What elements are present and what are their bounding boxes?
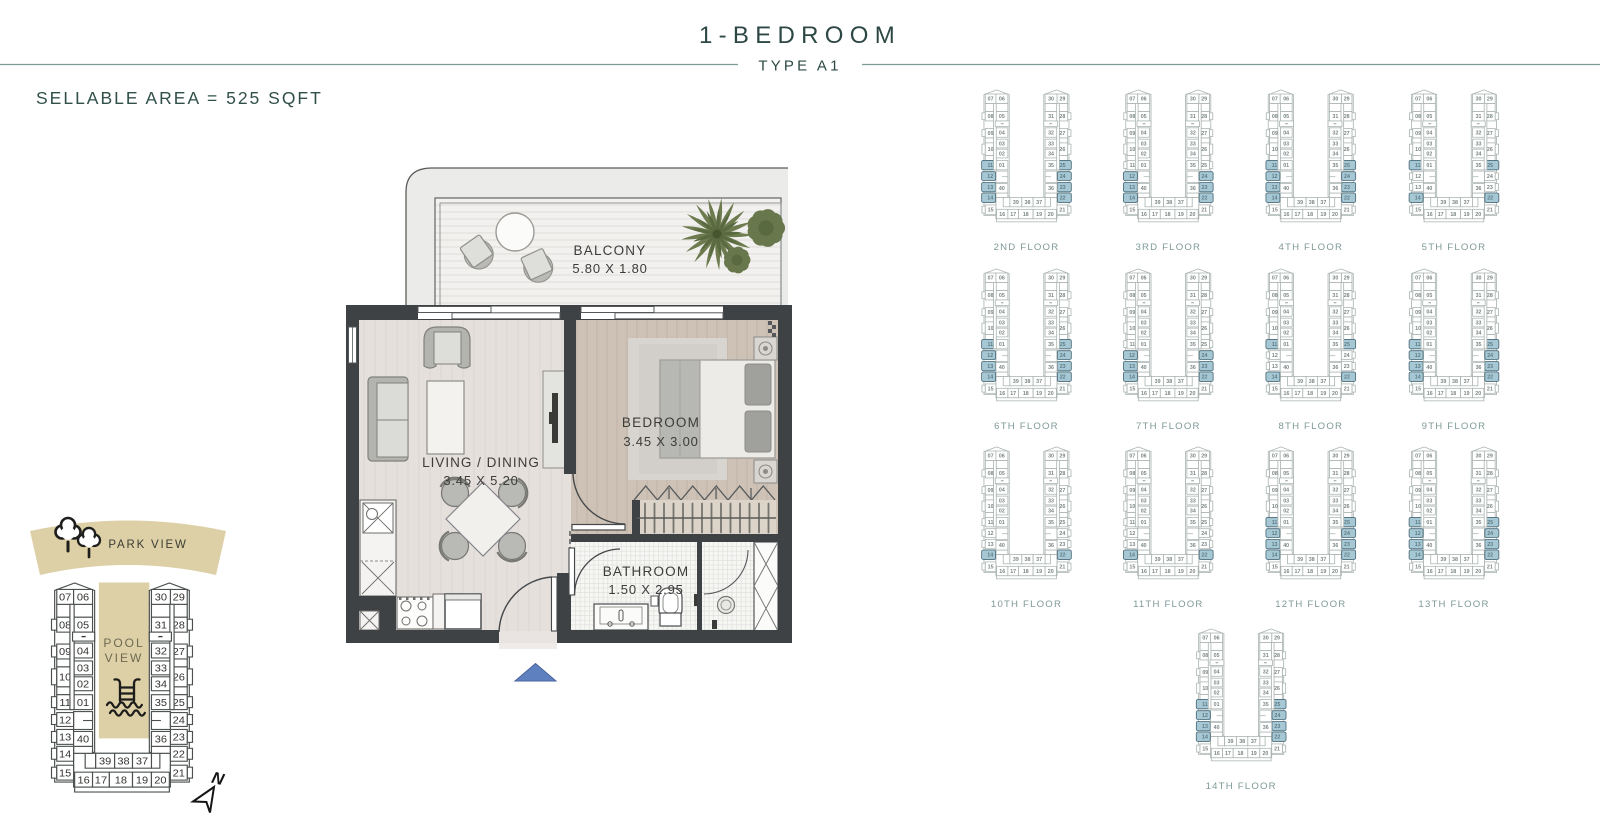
svg-text:20: 20 [1048,569,1054,575]
svg-text:22: 22 [1060,375,1066,381]
svg-text:40: 40 [1283,543,1289,549]
svg-text:16: 16 [999,391,1005,397]
svg-text:15: 15 [988,387,994,393]
svg-text:36: 36 [1476,543,1482,549]
svg-text:10: 10 [1272,147,1278,153]
svg-text:21: 21 [1059,565,1065,571]
svg-text:25: 25 [1344,520,1350,526]
svg-text:03: 03 [1283,141,1289,147]
svg-text:20: 20 [1332,391,1338,397]
svg-text:23: 23 [173,732,185,744]
svg-text:05: 05 [1283,114,1289,120]
svg-text:17: 17 [1225,751,1231,757]
svg-text:31: 31 [1332,114,1338,120]
svg-text:09: 09 [1202,670,1208,676]
svg-text:20: 20 [1048,391,1054,397]
svg-text:12: 12 [1272,174,1278,180]
svg-text:12: 12 [1129,531,1135,537]
svg-text:25: 25 [1201,163,1207,169]
svg-text:11: 11 [1130,163,1136,169]
svg-text:08: 08 [1415,293,1421,299]
svg-text:39: 39 [1013,200,1019,206]
svg-text:18: 18 [1165,391,1171,397]
svg-text:29: 29 [1059,454,1065,460]
svg-text:06: 06 [1426,276,1432,282]
svg-text:27: 27 [1059,310,1065,316]
svg-text:38: 38 [1025,379,1031,385]
svg-text:14: 14 [1272,375,1278,381]
svg-text:30: 30 [1332,454,1338,460]
svg-text:11: 11 [1130,342,1136,348]
svg-text:28: 28 [1344,114,1350,120]
svg-text:19: 19 [1251,751,1257,757]
svg-text:14: 14 [1415,196,1421,202]
svg-text:35: 35 [1048,342,1054,348]
svg-text:03: 03 [1141,320,1147,326]
svg-text:19: 19 [1464,569,1470,575]
svg-text:27: 27 [1487,310,1493,316]
svg-text:05: 05 [77,620,89,632]
svg-text:34: 34 [1476,508,1482,514]
svg-text:39: 39 [1155,379,1161,385]
svg-text:04: 04 [1141,309,1147,315]
svg-text:22: 22 [173,749,185,761]
svg-text:04: 04 [1426,309,1432,315]
svg-text:06: 06 [1426,454,1432,460]
svg-text:14: 14 [1415,553,1421,559]
svg-text:30: 30 [1048,276,1054,282]
svg-text:22: 22 [1344,375,1350,381]
svg-text:37: 37 [1251,739,1257,745]
svg-text:04: 04 [1283,309,1289,315]
svg-text:01: 01 [1214,702,1220,708]
svg-text:12: 12 [1272,531,1278,537]
svg-text:05: 05 [1283,293,1289,299]
svg-text:02: 02 [77,679,89,691]
svg-text:21: 21 [1059,208,1065,214]
svg-text:02: 02 [1141,508,1147,514]
svg-text:40: 40 [1141,186,1147,192]
svg-text:7TH FLOOR: 7TH FLOOR [1136,421,1201,432]
svg-text:08: 08 [1272,114,1278,120]
svg-text:26: 26 [1059,326,1065,332]
svg-text:01: 01 [1141,163,1147,169]
svg-text:19: 19 [1320,391,1326,397]
svg-text:36: 36 [155,734,167,746]
svg-text:12: 12 [988,531,994,537]
svg-text:04: 04 [999,487,1005,493]
svg-text:21: 21 [173,768,185,780]
svg-text:32: 32 [1190,130,1196,136]
svg-text:11: 11 [1415,163,1421,169]
svg-text:19: 19 [1464,391,1470,397]
svg-text:32: 32 [1476,487,1482,493]
svg-text:12TH FLOOR: 12TH FLOOR [1275,599,1346,610]
svg-text:01: 01 [1283,520,1289,526]
svg-text:19: 19 [1464,212,1470,218]
svg-text:36: 36 [1332,543,1338,549]
svg-text:36: 36 [1048,365,1054,371]
svg-text:23: 23 [1487,185,1493,191]
svg-text:31: 31 [1476,114,1482,120]
svg-text:24: 24 [173,715,185,727]
svg-text:26: 26 [1201,326,1207,332]
svg-text:29: 29 [1344,454,1350,460]
svg-text:14: 14 [987,553,993,559]
svg-text:24: 24 [1060,174,1066,180]
svg-text:36: 36 [1190,365,1196,371]
svg-text:19: 19 [1036,391,1042,397]
svg-text:04: 04 [1283,487,1289,493]
svg-text:09: 09 [1272,131,1278,137]
svg-text:27: 27 [1059,131,1065,137]
svg-text:31: 31 [155,620,167,632]
svg-text:27: 27 [1344,488,1350,494]
svg-text:27: 27 [1487,131,1493,137]
svg-text:09: 09 [1272,310,1278,316]
svg-text:13: 13 [1202,724,1208,730]
svg-text:09: 09 [1129,488,1135,494]
svg-text:13: 13 [987,364,993,370]
svg-text:20: 20 [1475,391,1481,397]
svg-text:26: 26 [1059,504,1065,510]
svg-text:21: 21 [1344,208,1350,214]
svg-text:15: 15 [1415,387,1421,393]
svg-text:27: 27 [1059,488,1065,494]
svg-text:33: 33 [1190,141,1196,147]
svg-text:33: 33 [1190,320,1196,326]
svg-text:09: 09 [1129,131,1135,137]
svg-text:17: 17 [1010,569,1016,575]
svg-text:24: 24 [1201,531,1207,537]
svg-text:06: 06 [1283,97,1289,103]
svg-text:07: 07 [988,97,994,103]
svg-text:02: 02 [1141,151,1147,157]
svg-text:13: 13 [1129,364,1135,370]
svg-text:2ND FLOOR: 2ND FLOOR [994,242,1060,253]
svg-text:32: 32 [1190,309,1196,315]
svg-text:23: 23 [1487,364,1493,370]
svg-text:28: 28 [1487,471,1493,477]
svg-text:02: 02 [999,330,1005,336]
svg-text:BATHROOM: BATHROOM [603,564,690,579]
svg-text:02: 02 [1141,330,1147,336]
svg-text:23: 23 [1487,542,1493,548]
svg-text:30: 30 [1190,97,1196,103]
svg-text:22: 22 [1202,375,1208,381]
svg-text:1-BEDROOM: 1-BEDROOM [699,22,901,49]
svg-text:12: 12 [1129,174,1135,180]
svg-text:03: 03 [77,663,89,675]
svg-text:30: 30 [1476,276,1482,282]
svg-text:35: 35 [1332,520,1338,526]
svg-text:29: 29 [1487,97,1493,103]
svg-text:39: 39 [1440,557,1446,563]
svg-text:25: 25 [1201,342,1207,348]
svg-text:17: 17 [1295,212,1301,218]
svg-text:16: 16 [1141,212,1147,218]
svg-text:23: 23 [1344,185,1350,191]
svg-text:18: 18 [1450,391,1456,397]
svg-text:32: 32 [1263,669,1269,675]
svg-text:14: 14 [1129,196,1135,202]
svg-text:38: 38 [1166,557,1172,563]
svg-text:13: 13 [1129,185,1135,191]
svg-text:19: 19 [1178,212,1184,218]
svg-text:09: 09 [988,488,994,494]
svg-text:26: 26 [1201,504,1207,510]
svg-text:10: 10 [1415,504,1421,510]
svg-text:PARK VIEW: PARK VIEW [108,539,187,551]
svg-text:31: 31 [1190,293,1196,299]
svg-text:34: 34 [1263,690,1269,696]
svg-text:36: 36 [1263,725,1269,731]
svg-text:23: 23 [1059,542,1065,548]
svg-text:18: 18 [1023,212,1029,218]
svg-text:34: 34 [1048,508,1054,514]
svg-text:09: 09 [1129,310,1135,316]
svg-text:20: 20 [1190,391,1196,397]
svg-text:07: 07 [1415,97,1421,103]
svg-text:35: 35 [1048,163,1054,169]
svg-text:30: 30 [1048,97,1054,103]
svg-text:20: 20 [1475,569,1481,575]
svg-text:18: 18 [1307,212,1313,218]
svg-text:TYPE A1: TYPE A1 [758,58,841,75]
svg-text:35: 35 [1476,342,1482,348]
svg-text:19: 19 [1178,569,1184,575]
svg-text:37: 37 [1464,557,1470,563]
svg-text:01: 01 [999,163,1005,169]
svg-text:02: 02 [1426,151,1432,157]
svg-text:24: 24 [1059,531,1065,537]
svg-text:02: 02 [999,151,1005,157]
svg-text:29: 29 [1487,454,1493,460]
svg-text:26: 26 [1344,326,1350,332]
svg-text:32: 32 [1048,487,1054,493]
svg-text:38: 38 [1166,379,1172,385]
svg-text:19: 19 [1320,569,1326,575]
svg-text:37: 37 [1320,200,1326,206]
svg-text:16: 16 [1284,391,1290,397]
svg-text:03: 03 [1426,498,1432,504]
svg-text:17: 17 [1152,212,1158,218]
svg-text:37: 37 [1036,379,1042,385]
svg-text:05: 05 [999,293,1005,299]
svg-text:06: 06 [999,97,1005,103]
svg-text:25: 25 [1274,702,1280,708]
svg-text:12: 12 [1129,353,1135,359]
svg-text:11TH FLOOR: 11TH FLOOR [1133,599,1203,610]
svg-text:14: 14 [1415,375,1421,381]
svg-text:21: 21 [1059,387,1065,393]
svg-text:03: 03 [999,320,1005,326]
svg-text:28: 28 [1201,293,1207,299]
svg-text:30: 30 [1332,97,1338,103]
svg-text:32: 32 [1332,130,1338,136]
svg-text:21: 21 [1487,565,1493,571]
svg-text:24: 24 [1202,353,1208,359]
svg-text:3.45 X 5.20: 3.45 X 5.20 [443,473,518,488]
svg-text:39: 39 [1297,557,1303,563]
svg-text:21: 21 [1487,208,1493,214]
svg-text:05: 05 [999,114,1005,120]
svg-text:36: 36 [1048,543,1054,549]
svg-text:32: 32 [1190,487,1196,493]
svg-text:13: 13 [1415,364,1421,370]
svg-text:25: 25 [1344,163,1350,169]
svg-text:08: 08 [1415,114,1421,120]
svg-text:21: 21 [1201,565,1207,571]
svg-text:40: 40 [1141,365,1147,371]
svg-text:22: 22 [1202,196,1208,202]
svg-text:12: 12 [1272,353,1278,359]
svg-text:39: 39 [1155,557,1161,563]
svg-text:36: 36 [1190,543,1196,549]
svg-text:24: 24 [1487,174,1493,180]
svg-text:28: 28 [1059,114,1065,120]
svg-text:12: 12 [1202,713,1208,719]
svg-text:14: 14 [1129,375,1135,381]
svg-text:13: 13 [1272,185,1278,191]
svg-text:15: 15 [59,768,71,780]
svg-text:10: 10 [1129,147,1135,153]
svg-text:17: 17 [1152,391,1158,397]
svg-text:27: 27 [1344,310,1350,316]
svg-text:30: 30 [1332,276,1338,282]
svg-text:03: 03 [1141,141,1147,147]
svg-text:06: 06 [1141,454,1147,460]
svg-text:37: 37 [1464,379,1470,385]
svg-text:16: 16 [1214,751,1220,757]
svg-text:03: 03 [999,141,1005,147]
svg-text:14: 14 [987,196,993,202]
svg-text:40: 40 [999,365,1005,371]
svg-text:33: 33 [1476,320,1482,326]
svg-text:4TH FLOOR: 4TH FLOOR [1278,242,1343,253]
svg-text:11: 11 [1272,163,1278,169]
svg-text:10: 10 [1129,504,1135,510]
svg-text:24: 24 [1202,174,1208,180]
svg-text:17: 17 [1010,391,1016,397]
svg-text:04: 04 [1214,669,1220,675]
svg-text:35: 35 [155,697,167,709]
svg-text:5.80 X 1.80: 5.80 X 1.80 [572,261,647,276]
svg-text:31: 31 [1263,653,1269,659]
svg-text:30: 30 [1263,636,1269,642]
svg-text:16: 16 [1427,391,1433,397]
svg-text:29: 29 [1201,276,1207,282]
svg-text:35: 35 [1476,163,1482,169]
svg-text:21: 21 [1344,387,1350,393]
svg-text:31: 31 [1476,471,1482,477]
svg-text:31: 31 [1048,293,1054,299]
svg-text:8TH FLOOR: 8TH FLOOR [1278,421,1343,432]
svg-text:22: 22 [1060,196,1066,202]
svg-text:16: 16 [1427,212,1433,218]
svg-text:06: 06 [1141,276,1147,282]
svg-text:07: 07 [988,454,994,460]
svg-text:18: 18 [1023,569,1029,575]
svg-text:04: 04 [1426,130,1432,136]
svg-text:13: 13 [1272,364,1278,370]
svg-text:23: 23 [1202,185,1208,191]
svg-text:18: 18 [1450,212,1456,218]
svg-text:28: 28 [1487,114,1493,120]
svg-text:10: 10 [1415,147,1421,153]
svg-text:18: 18 [1165,212,1171,218]
svg-text:07: 07 [1415,276,1421,282]
svg-text:25: 25 [1060,163,1066,169]
svg-text:13: 13 [1415,542,1421,548]
svg-text:06: 06 [1283,454,1289,460]
svg-text:02: 02 [1283,330,1289,336]
svg-text:35: 35 [1332,163,1338,169]
svg-text:05: 05 [1141,471,1147,477]
svg-text:6TH FLOOR: 6TH FLOOR [994,421,1059,432]
svg-text:26: 26 [1059,147,1065,153]
svg-text:24: 24 [1344,174,1350,180]
svg-text:01: 01 [999,342,1005,348]
svg-text:06: 06 [1426,97,1432,103]
svg-text:26: 26 [1487,504,1493,510]
svg-text:01: 01 [1426,342,1432,348]
svg-text:38: 38 [1025,200,1031,206]
svg-text:08: 08 [1415,471,1421,477]
svg-text:08: 08 [1129,471,1135,477]
svg-text:04: 04 [1283,130,1289,136]
svg-text:33: 33 [1048,320,1054,326]
svg-text:03: 03 [1283,498,1289,504]
svg-text:04: 04 [1141,130,1147,136]
svg-text:07: 07 [1415,454,1421,460]
svg-text:17: 17 [1438,391,1444,397]
svg-text:03: 03 [999,498,1005,504]
svg-text:29: 29 [1059,97,1065,103]
svg-text:40: 40 [1426,186,1432,192]
svg-text:05: 05 [1141,293,1147,299]
svg-text:02: 02 [1283,151,1289,157]
svg-text:15: 15 [1202,747,1208,753]
svg-text:08: 08 [988,293,994,299]
svg-text:03: 03 [1283,320,1289,326]
svg-text:02: 02 [1214,690,1220,696]
svg-text:29: 29 [1201,97,1207,103]
svg-text:11: 11 [1415,520,1421,526]
svg-text:38: 38 [1452,557,1458,563]
svg-text:22: 22 [1487,196,1493,202]
svg-text:10: 10 [1272,326,1278,332]
svg-text:POOL: POOL [103,636,144,650]
svg-text:33: 33 [1332,498,1338,504]
svg-text:16: 16 [999,569,1005,575]
svg-text:29: 29 [1059,276,1065,282]
svg-text:15: 15 [1415,208,1421,214]
svg-text:12: 12 [59,715,71,727]
svg-text:01: 01 [1283,342,1289,348]
svg-text:29: 29 [1274,636,1280,642]
svg-text:24: 24 [1274,713,1280,719]
svg-text:14TH FLOOR: 14TH FLOOR [1206,781,1277,792]
svg-text:23: 23 [1060,185,1066,191]
svg-text:05: 05 [1426,293,1432,299]
svg-text:22: 22 [1344,553,1350,559]
svg-text:37: 37 [136,756,148,768]
svg-text:04: 04 [1426,487,1432,493]
svg-text:17: 17 [1295,391,1301,397]
svg-text:40: 40 [1426,365,1432,371]
svg-text:3RD FLOOR: 3RD FLOOR [1135,242,1201,253]
